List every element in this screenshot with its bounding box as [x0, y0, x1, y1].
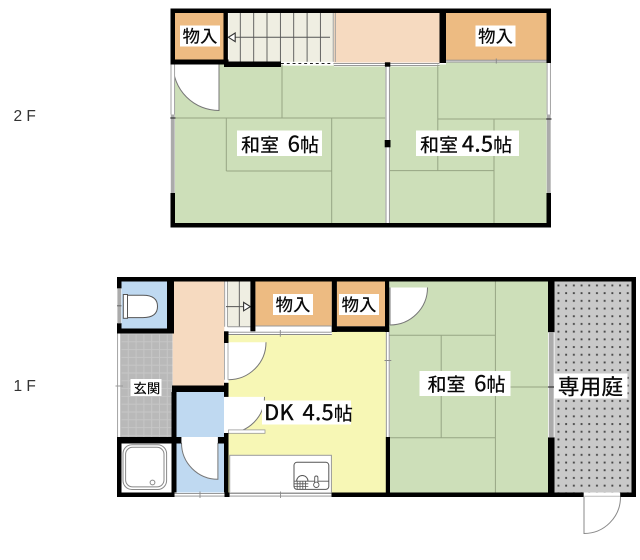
svg-text:2 F: 2 F	[14, 108, 36, 125]
svg-text:1 F: 1 F	[14, 378, 36, 395]
